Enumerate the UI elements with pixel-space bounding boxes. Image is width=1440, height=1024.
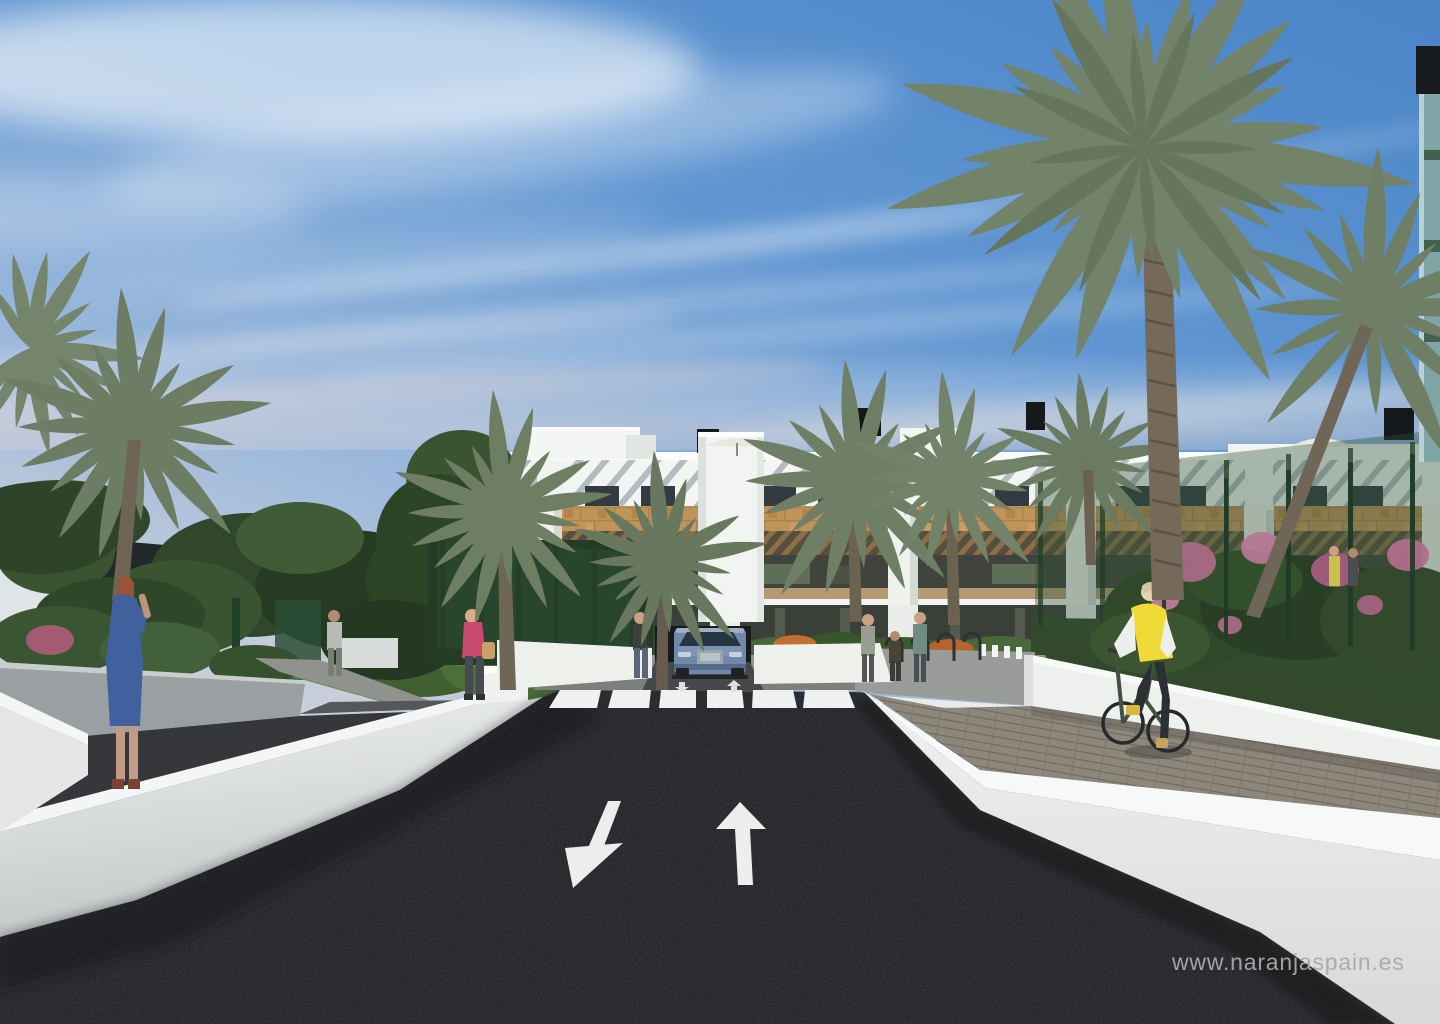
svg-text:www.naranjaspain.es: www.naranjaspain.es [1171,949,1405,975]
